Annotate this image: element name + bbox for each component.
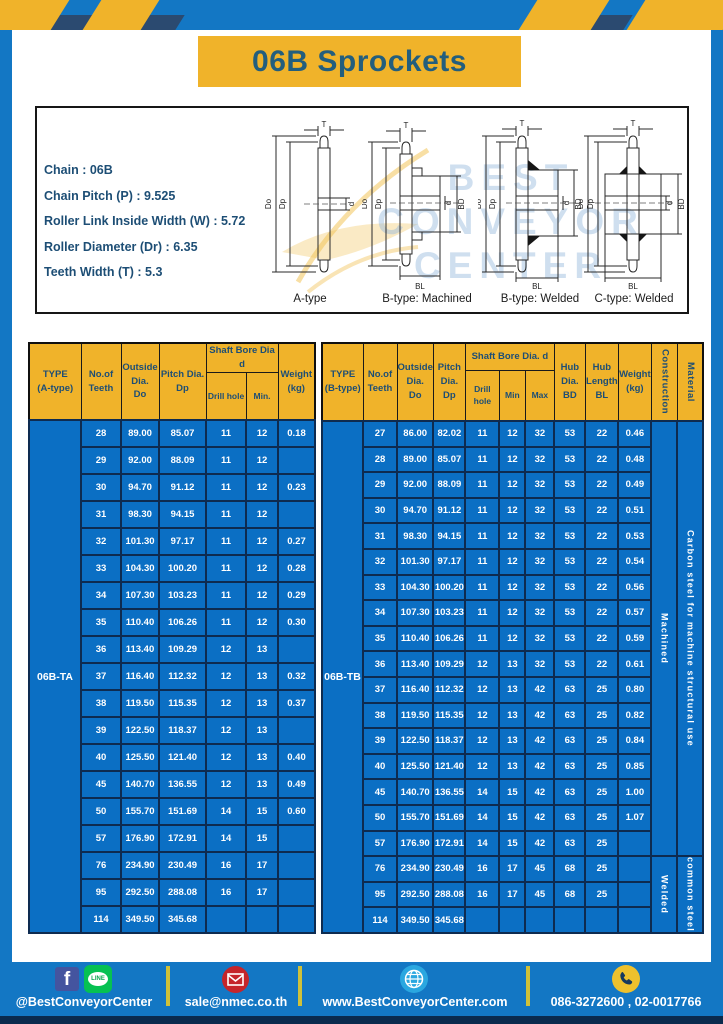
table-cell: 0.85 <box>618 754 651 780</box>
construction-cell: Machined <box>651 421 677 856</box>
hazard-stripe <box>627 0 723 30</box>
table-cell: 15 <box>499 831 525 857</box>
table-cell: 22 <box>585 447 618 473</box>
table-cell: 45 <box>81 771 121 798</box>
table-cell: 107.30 <box>121 582 159 609</box>
table-cell: 115.35 <box>159 690 206 717</box>
sprocket-drawing-c-type-welded: Do Dp d BD BL T <box>579 118 687 290</box>
table-cell: 14 <box>465 831 499 857</box>
website-url[interactable]: www.BestConveyorCenter.com <box>305 995 525 1009</box>
svg-text:d: d <box>665 201 674 205</box>
table-cell: 12 <box>499 600 525 626</box>
table-cell: 53 <box>554 472 585 498</box>
table-cell: 0.82 <box>618 703 651 729</box>
table-cell: 25 <box>585 831 618 857</box>
table-cell <box>278 447 315 474</box>
drawing-label-c-welded: C-type: Welded <box>578 293 690 305</box>
table-cell: 125.50 <box>121 744 159 771</box>
table-cell: 0.30 <box>278 609 315 636</box>
table-cell: 95 <box>363 882 397 908</box>
table-cell: 22 <box>585 421 618 447</box>
table-cell: 50 <box>81 798 121 825</box>
table-cell: 15 <box>499 805 525 831</box>
table-cell: 34 <box>363 600 397 626</box>
table-cell: 25 <box>585 805 618 831</box>
column-header: Construction <box>651 343 677 421</box>
column-header: Shaft Bore Dia d <box>206 343 278 372</box>
page-title: 06B Sprockets <box>198 36 521 87</box>
table-cell <box>465 907 499 933</box>
table-cell: 15 <box>499 779 525 805</box>
table-cell: 12 <box>465 651 499 677</box>
table-cell: 12 <box>206 636 246 663</box>
table-cell: 32 <box>525 447 554 473</box>
table-cell: 63 <box>554 728 585 754</box>
email-icon[interactable] <box>222 966 249 993</box>
table-cell <box>618 882 651 908</box>
table-cell: 85.07 <box>159 420 206 447</box>
table-cell: 16 <box>206 879 246 906</box>
table-cell: 114 <box>81 906 121 933</box>
table-cell: 53 <box>554 651 585 677</box>
svg-text:Dp: Dp <box>278 198 287 209</box>
svg-text:Dp: Dp <box>488 198 497 209</box>
table-cell: 22 <box>585 549 618 575</box>
spec-line-teeth-width: Teeth Width (T) : 5.3 <box>44 260 276 286</box>
table-cell <box>278 717 315 744</box>
email-address[interactable]: sale@nmec.co.th <box>172 995 300 1009</box>
table-cell: 15 <box>246 798 278 825</box>
table-cell: 12 <box>246 609 278 636</box>
table-cell: 0.59 <box>618 626 651 652</box>
table-cell: 288.08 <box>159 879 206 906</box>
table-cell: 345.68 <box>159 906 206 933</box>
table-cell: 25 <box>585 728 618 754</box>
column-header: Min <box>499 370 525 421</box>
table-cell: 13 <box>499 754 525 780</box>
table-cell: 94.70 <box>397 498 433 524</box>
table-cell: 32 <box>525 600 554 626</box>
table-cell: 53 <box>554 421 585 447</box>
table-cell: 230.49 <box>433 856 465 882</box>
table-cell: 112.32 <box>433 677 465 703</box>
table-cell: 116.40 <box>397 677 433 703</box>
table-cell: 12 <box>499 421 525 447</box>
table-cell: 89.00 <box>397 447 433 473</box>
svg-text:T: T <box>322 120 327 129</box>
table-cell: 1.00 <box>618 779 651 805</box>
table-cell: 15 <box>246 825 278 852</box>
table-cell: 155.70 <box>121 798 159 825</box>
table-cell: 17 <box>246 852 278 879</box>
table-cell: 234.90 <box>121 852 159 879</box>
table-cell: 57 <box>363 831 397 857</box>
table-cell: 35 <box>81 609 121 636</box>
construction-cell: Welded <box>651 856 677 933</box>
table-cell: 36 <box>363 651 397 677</box>
table-cell: 116.40 <box>121 663 159 690</box>
material-cell: common steel <box>677 856 703 933</box>
table-cell: 12 <box>246 474 278 501</box>
table-cell: 0.18 <box>278 420 315 447</box>
table-cell: 151.69 <box>433 805 465 831</box>
svg-text:Dp: Dp <box>374 198 383 209</box>
table-cell: 12 <box>499 447 525 473</box>
table-cell: 11 <box>465 447 499 473</box>
table-cell <box>525 907 554 933</box>
table-cell: 109.29 <box>433 651 465 677</box>
table-cell: 136.55 <box>433 779 465 805</box>
svg-text:Do: Do <box>478 198 483 209</box>
table-cell: 11 <box>465 472 499 498</box>
table-cell: 140.70 <box>397 779 433 805</box>
sprocket-drawing-b-type-welded: Do Dp d BD BL T <box>478 118 582 290</box>
table-cell: 12 <box>499 472 525 498</box>
table-cell: 57 <box>81 825 121 852</box>
table-cell: 101.30 <box>397 549 433 575</box>
table-cell: 53 <box>554 626 585 652</box>
globe-icon <box>400 965 428 993</box>
table-cell <box>278 852 315 879</box>
table-cell: 0.56 <box>618 575 651 601</box>
table-cell: 32 <box>363 549 397 575</box>
page-frame-right <box>711 30 723 962</box>
table-cell: 28 <box>363 447 397 473</box>
table-cell: 125.50 <box>397 754 433 780</box>
table-cell: 1.07 <box>618 805 651 831</box>
table-cell: 25 <box>585 703 618 729</box>
social-handle: @BestConveyorCenter <box>4 995 164 1009</box>
table-cell: 292.50 <box>121 879 159 906</box>
table-cell: 45 <box>525 882 554 908</box>
table-cell: 27 <box>363 421 397 447</box>
table-cell: 63 <box>554 703 585 729</box>
footer: f LINE @BestConveyorCenter sale@nmec.co.… <box>0 962 723 1016</box>
table-cell: 113.40 <box>397 651 433 677</box>
table-cell: 118.37 <box>159 717 206 744</box>
table-cell: 82.02 <box>433 421 465 447</box>
table-cell: 40 <box>363 754 397 780</box>
table-cell: 12 <box>465 754 499 780</box>
svg-text:d: d <box>444 201 453 205</box>
table-cell: 30 <box>363 498 397 524</box>
table-cell: 14 <box>206 798 246 825</box>
table-cell: 22 <box>585 523 618 549</box>
svg-text:T: T <box>520 119 525 128</box>
line-icon[interactable]: LINE <box>84 965 112 993</box>
table-cell: 28 <box>81 420 121 447</box>
top-hazard-band <box>0 0 723 30</box>
chain-spec-list: Chain : 06B Chain Pitch (P) : 9.525 Roll… <box>44 158 276 286</box>
table-cell <box>278 879 315 906</box>
table-cell: 94.70 <box>121 474 159 501</box>
table-cell: 100.20 <box>159 555 206 582</box>
table-cell: 121.40 <box>433 754 465 780</box>
table-cell: 103.23 <box>159 582 206 609</box>
svg-text:BL: BL <box>532 282 542 290</box>
facebook-icon[interactable]: f <box>55 967 79 991</box>
table-cell: 12 <box>246 501 278 528</box>
table-cell: 12 <box>206 717 246 744</box>
table-cell: 11 <box>206 555 246 582</box>
facebook-glyph: f <box>64 969 70 991</box>
spec-line-roller-dia: Roller Diameter (Dr) : 6.35 <box>44 235 276 261</box>
table-cell: 13 <box>246 663 278 690</box>
column-header: Material <box>677 343 703 421</box>
table-cell: 53 <box>554 447 585 473</box>
a-type-table-container: TYPE (A-type)No.of TeethOutside Dia. DoP… <box>28 342 316 934</box>
table-cell: 11 <box>206 420 246 447</box>
table-cell: 91.12 <box>433 498 465 524</box>
column-header: Weight (kg) <box>618 343 651 421</box>
table-cell: 97.17 <box>433 549 465 575</box>
table-cell: 14 <box>465 779 499 805</box>
table-cell: 32 <box>525 472 554 498</box>
table-cell: 16 <box>465 882 499 908</box>
table-cell: 112.32 <box>159 663 206 690</box>
table-cell: 25 <box>585 882 618 908</box>
table-cell: 29 <box>363 472 397 498</box>
table-cell: 12 <box>499 523 525 549</box>
table-cell: 38 <box>363 703 397 729</box>
table-cell: 97.17 <box>159 528 206 555</box>
table-cell: 42 <box>525 728 554 754</box>
svg-text:BD: BD <box>457 198 466 209</box>
table-cell: 0.61 <box>618 651 651 677</box>
table-cell <box>554 907 585 933</box>
table-cell: 12 <box>246 582 278 609</box>
svg-text:BD: BD <box>677 198 686 209</box>
table-cell: 0.53 <box>618 523 651 549</box>
table-cell: 22 <box>585 498 618 524</box>
table-cell: 12 <box>465 703 499 729</box>
table-cell: 234.90 <box>397 856 433 882</box>
sprocket-drawing-b-type-machined: Do Dp d BD BL T <box>362 118 466 290</box>
table-cell: 25 <box>585 677 618 703</box>
table-cell: 11 <box>465 421 499 447</box>
table-cell <box>278 825 315 852</box>
table-cell: 32 <box>525 421 554 447</box>
table-cell: 63 <box>554 677 585 703</box>
column-header: Max <box>525 370 554 421</box>
table-cell: 86.00 <box>397 421 433 447</box>
table-cell: 32 <box>525 498 554 524</box>
table-cell: 89.00 <box>121 420 159 447</box>
table-cell: 94.15 <box>159 501 206 528</box>
table-cell: 12 <box>206 771 246 798</box>
table-cell <box>618 907 651 933</box>
a-type-table: TYPE (A-type)No.of TeethOutside Dia. DoP… <box>28 342 316 934</box>
table-cell: 37 <box>363 677 397 703</box>
table-cell: 53 <box>554 498 585 524</box>
table-cell: 0.49 <box>278 771 315 798</box>
table-cell: 11 <box>465 498 499 524</box>
table-cell: 0.57 <box>618 600 651 626</box>
table-cell: 12 <box>499 575 525 601</box>
table-cell <box>585 907 618 933</box>
table-cell: 53 <box>554 549 585 575</box>
table-cell: 0.48 <box>618 447 651 473</box>
table-cell: 11 <box>465 575 499 601</box>
table-cell: 31 <box>363 523 397 549</box>
table-cell: 349.50 <box>121 906 159 933</box>
table-cell: 63 <box>554 779 585 805</box>
table-cell <box>206 906 246 933</box>
table-cell: 45 <box>363 779 397 805</box>
svg-text:T: T <box>631 119 636 128</box>
table-cell: 13 <box>499 651 525 677</box>
table-cell: 101.30 <box>121 528 159 555</box>
column-header: TYPE (B-type) <box>322 343 363 421</box>
table-cell: 32 <box>525 651 554 677</box>
table-cell: 11 <box>206 501 246 528</box>
table-cell: 12 <box>465 728 499 754</box>
table-cell: 76 <box>363 856 397 882</box>
table-cell: 151.69 <box>159 798 206 825</box>
table-cell: 22 <box>585 626 618 652</box>
table-cell: 53 <box>554 575 585 601</box>
table-cell: 0.29 <box>278 582 315 609</box>
drawing-label-a-type: A-type <box>258 293 362 305</box>
table-cell: 0.28 <box>278 555 315 582</box>
table-cell: 63 <box>554 805 585 831</box>
table-cell: 0.80 <box>618 677 651 703</box>
table-cell: 13 <box>246 717 278 744</box>
table-cell: 12 <box>246 528 278 555</box>
table-cell: 42 <box>525 831 554 857</box>
table-cell: 12 <box>206 690 246 717</box>
table-cell: 17 <box>499 882 525 908</box>
table-cell: 11 <box>465 549 499 575</box>
table-cell: 11 <box>206 528 246 555</box>
column-header: Outside Dia. Do <box>397 343 433 421</box>
column-header: Min. <box>246 372 278 420</box>
table-cell: 13 <box>499 677 525 703</box>
table-cell: 110.40 <box>397 626 433 652</box>
table-cell: 63 <box>554 754 585 780</box>
spec-line-roller-width: Roller Link Inside Width (W) : 5.72 <box>44 209 276 235</box>
table-cell: 12 <box>499 498 525 524</box>
table-cell: 140.70 <box>121 771 159 798</box>
table-cell: 92.00 <box>397 472 433 498</box>
b-type-table-container: TYPE (B-type)No.of TeethOutside Dia. DoP… <box>321 342 704 934</box>
type-label-cell: 06B-TB <box>322 421 363 933</box>
table-cell: 136.55 <box>159 771 206 798</box>
footer-divider <box>166 966 170 1006</box>
table-cell: 13 <box>499 728 525 754</box>
table-cell: 32 <box>525 523 554 549</box>
phone-icon <box>612 965 640 993</box>
table-cell: 98.30 <box>121 501 159 528</box>
table-cell: 0.60 <box>278 798 315 825</box>
table-cell: 45 <box>525 856 554 882</box>
table-cell: 122.50 <box>397 728 433 754</box>
table-cell: 32 <box>525 626 554 652</box>
table-cell: 53 <box>554 523 585 549</box>
table-cell: 42 <box>525 805 554 831</box>
table-cell: 0.54 <box>618 549 651 575</box>
table-cell: 39 <box>81 717 121 744</box>
table-cell: 0.32 <box>278 663 315 690</box>
table-cell: 13 <box>246 744 278 771</box>
table-cell: 33 <box>81 555 121 582</box>
column-header: TYPE (A-type) <box>29 343 81 420</box>
table-cell: 36 <box>81 636 121 663</box>
table-cell: 76 <box>81 852 121 879</box>
table-cell: 42 <box>525 779 554 805</box>
table-cell: 11 <box>465 626 499 652</box>
spec-line-pitch: Chain Pitch (P) : 9.525 <box>44 184 276 210</box>
table-cell: 91.12 <box>159 474 206 501</box>
table-cell: 11 <box>206 609 246 636</box>
column-header: Shaft Bore Dia. d <box>465 343 554 370</box>
table-cell: 12 <box>465 677 499 703</box>
table-cell <box>278 501 315 528</box>
table-cell: 11 <box>465 523 499 549</box>
table-cell: 109.29 <box>159 636 206 663</box>
table-cell: 16 <box>206 852 246 879</box>
table-cell: 113.40 <box>121 636 159 663</box>
svg-text:Dp: Dp <box>586 198 595 209</box>
table-cell: 32 <box>525 575 554 601</box>
table-cell: 118.37 <box>433 728 465 754</box>
table-cell <box>618 831 651 857</box>
table-cell: 104.30 <box>397 575 433 601</box>
table-cell: 292.50 <box>397 882 433 908</box>
table-cell: 11 <box>206 582 246 609</box>
table-cell: 122.50 <box>121 717 159 744</box>
column-header: Outside Dia. Do <box>121 343 159 420</box>
sprocket-drawing-a-type: Do Dp d T <box>258 118 362 290</box>
table-cell: 50 <box>363 805 397 831</box>
table-cell: 68 <box>554 856 585 882</box>
svg-text:Do: Do <box>579 198 585 209</box>
table-cell: 13 <box>246 690 278 717</box>
table-cell: 176.90 <box>397 831 433 857</box>
table-cell: 12 <box>246 555 278 582</box>
table-cell: 115.35 <box>433 703 465 729</box>
table-cell: 63 <box>554 831 585 857</box>
table-cell: 121.40 <box>159 744 206 771</box>
table-cell: 22 <box>585 651 618 677</box>
table-cell: 107.30 <box>397 600 433 626</box>
table-cell: 13 <box>246 771 278 798</box>
table-cell: 22 <box>585 472 618 498</box>
table-cell: 25 <box>585 779 618 805</box>
table-cell <box>499 907 525 933</box>
table-cell: 0.46 <box>618 421 651 447</box>
column-header: No.of Teeth <box>363 343 397 421</box>
table-cell: 349.50 <box>397 907 433 933</box>
table-cell: 119.50 <box>121 690 159 717</box>
footer-divider <box>298 966 302 1006</box>
column-header: Pitch Dia. Dp <box>159 343 206 420</box>
phone-numbers[interactable]: 086-3272600 , 02-0017766 <box>532 995 720 1009</box>
table-cell: 0.49 <box>618 472 651 498</box>
table-cell <box>278 906 315 933</box>
table-cell: 29 <box>81 447 121 474</box>
table-cell: 0.51 <box>618 498 651 524</box>
table-cell: 22 <box>585 575 618 601</box>
table-cell: 22 <box>585 600 618 626</box>
table-cell: 0.23 <box>278 474 315 501</box>
table-cell: 100.20 <box>433 575 465 601</box>
page-frame-left <box>0 30 12 962</box>
table-cell: 110.40 <box>121 609 159 636</box>
column-header: No.of Teeth <box>81 343 121 420</box>
b-type-table: TYPE (B-type)No.of TeethOutside Dia. DoP… <box>321 342 704 934</box>
table-cell: 39 <box>363 728 397 754</box>
